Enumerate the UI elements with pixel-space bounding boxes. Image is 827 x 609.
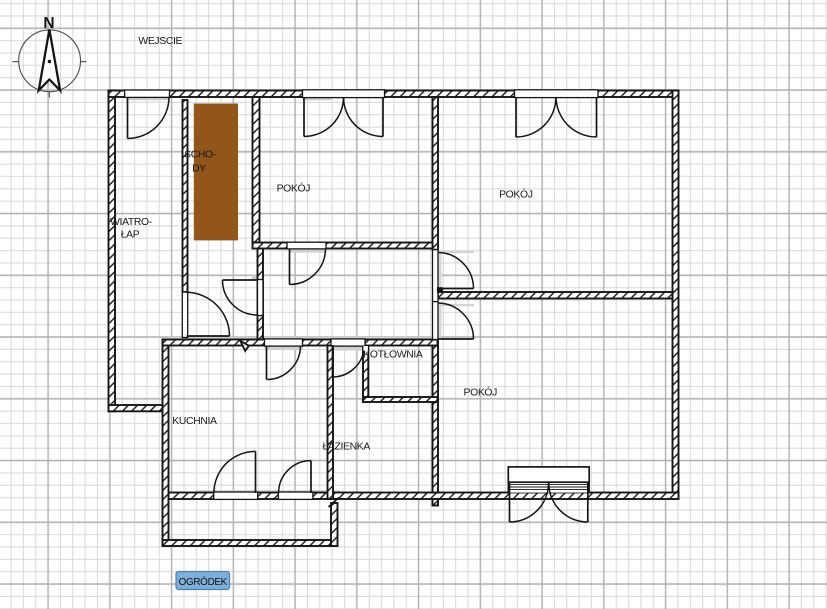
svg-text:SCHO-: SCHO- xyxy=(184,150,216,161)
svg-text:POKÓJ: POKÓJ xyxy=(499,188,533,201)
svg-text:KUCHNIA: KUCHNIA xyxy=(172,416,217,427)
svg-text:WEJSCIE: WEJSCIE xyxy=(138,36,182,47)
svg-text:OGRÓDEK: OGRÓDEK xyxy=(179,577,228,588)
svg-text:ŁAZIENKA: ŁAZIENKA xyxy=(323,442,371,453)
svg-text:POKÓJ: POKÓJ xyxy=(277,182,311,195)
svg-text:WIATRO-: WIATRO- xyxy=(110,217,152,228)
svg-text:ŁAP: ŁAP xyxy=(121,230,140,241)
svg-text:KOTŁOWNIA: KOTŁOWNIA xyxy=(363,350,423,361)
svg-text:N: N xyxy=(43,15,54,32)
svg-text:POKÓJ: POKÓJ xyxy=(464,386,498,399)
svg-text:DY: DY xyxy=(192,163,206,174)
